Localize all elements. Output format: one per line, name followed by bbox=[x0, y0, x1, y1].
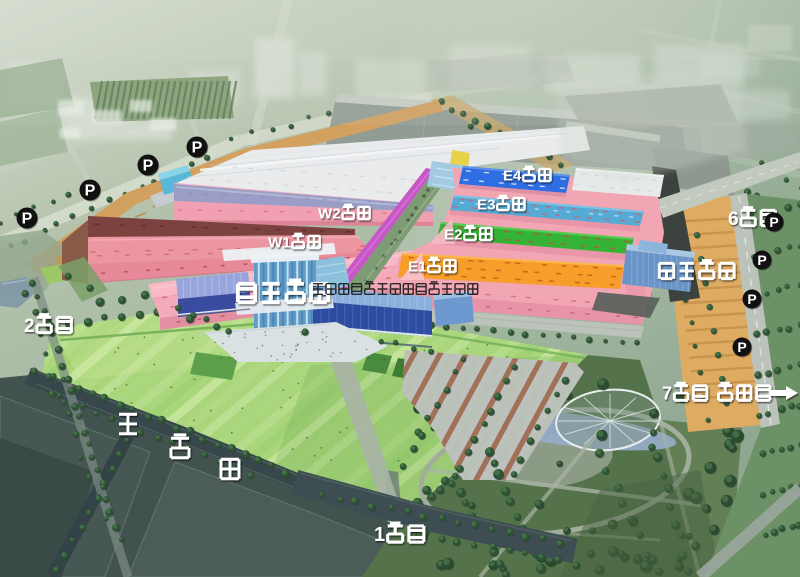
svg-text:P: P bbox=[757, 252, 766, 268]
svg-text:2: 2 bbox=[24, 316, 35, 337]
svg-text:1: 1 bbox=[418, 258, 426, 275]
svg-text:W: W bbox=[268, 234, 283, 251]
svg-text:E: E bbox=[477, 196, 487, 213]
svg-text:6: 6 bbox=[728, 209, 739, 230]
svg-text:1: 1 bbox=[374, 524, 385, 546]
svg-text:P: P bbox=[747, 291, 756, 307]
svg-text:E: E bbox=[503, 167, 513, 184]
svg-text:P: P bbox=[85, 183, 96, 200]
svg-text:1: 1 bbox=[282, 234, 290, 251]
svg-text:E: E bbox=[408, 258, 418, 275]
svg-text:2: 2 bbox=[332, 205, 340, 222]
svg-text:3: 3 bbox=[487, 196, 495, 213]
svg-text:4: 4 bbox=[513, 167, 522, 184]
svg-text:7: 7 bbox=[662, 384, 672, 404]
svg-text:E: E bbox=[444, 226, 454, 243]
svg-text:P: P bbox=[22, 211, 33, 228]
svg-text:P: P bbox=[192, 140, 203, 157]
svg-text:P: P bbox=[737, 339, 746, 355]
svg-text:2: 2 bbox=[454, 226, 462, 243]
svg-text:W: W bbox=[318, 205, 333, 222]
svg-text:P: P bbox=[143, 158, 154, 175]
svg-text:P: P bbox=[769, 214, 778, 230]
